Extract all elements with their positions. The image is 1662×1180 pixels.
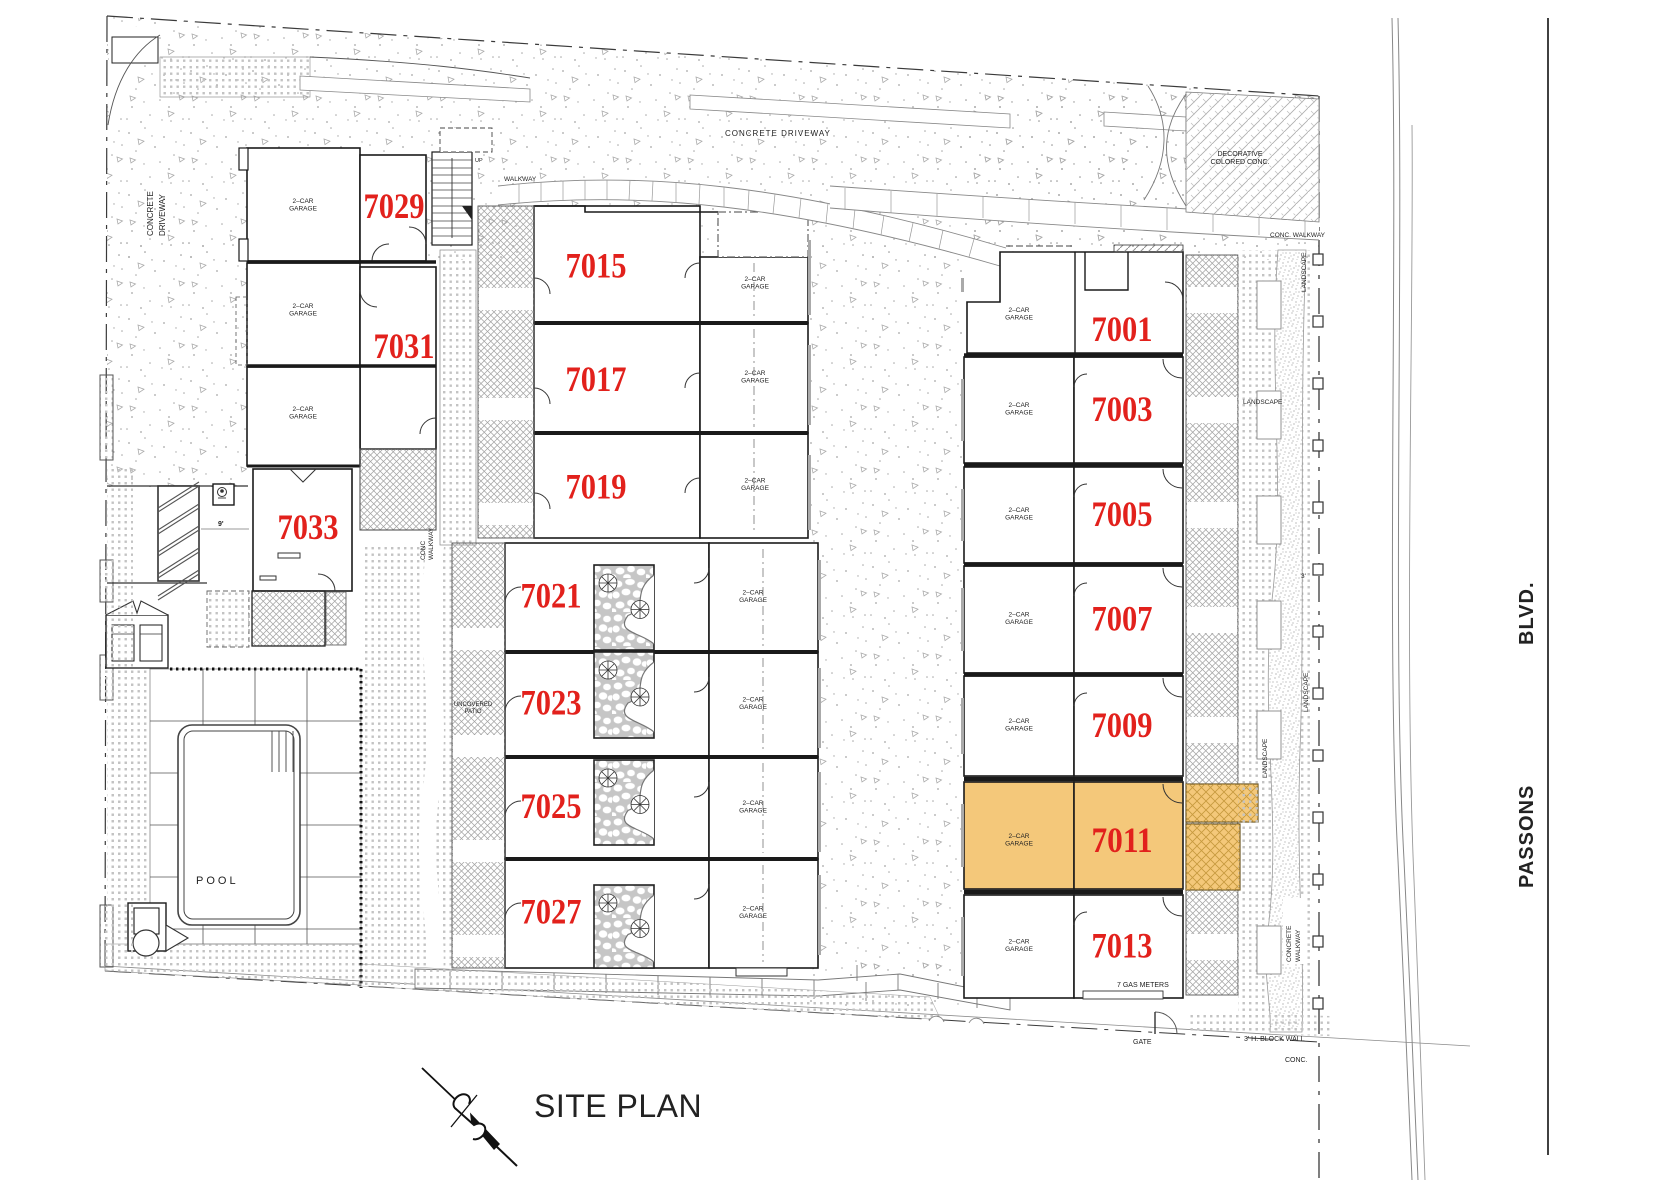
svg-text:WALKWAY: WALKWAY — [428, 527, 435, 560]
svg-text:2–CAR: 2–CAR — [1009, 939, 1030, 946]
svg-text:GARAGE: GARAGE — [1005, 315, 1033, 322]
svg-text:7029: 7029 — [364, 186, 425, 226]
svg-text:CONC. WALKWAY: CONC. WALKWAY — [1270, 232, 1326, 239]
svg-text:GARAGE: GARAGE — [741, 378, 769, 385]
svg-text:7013: 7013 — [1092, 926, 1153, 966]
svg-text:GARAGE: GARAGE — [1005, 946, 1033, 953]
svg-text:GARAGE: GARAGE — [1005, 410, 1033, 417]
svg-text:7009: 7009 — [1092, 705, 1153, 745]
svg-text:7019: 7019 — [566, 467, 627, 507]
svg-text:2–CAR: 2–CAR — [743, 590, 764, 597]
svg-text:2–CAR: 2–CAR — [745, 478, 766, 485]
svg-text:GARAGE: GARAGE — [289, 206, 317, 213]
svg-text:7005: 7005 — [1092, 494, 1153, 534]
svg-text:7033: 7033 — [278, 507, 339, 547]
svg-text:GARAGE: GARAGE — [1005, 841, 1033, 848]
svg-text:7007: 7007 — [1092, 599, 1153, 639]
svg-text:7025: 7025 — [521, 786, 582, 826]
svg-text:COLORED CONC.: COLORED CONC. — [1210, 159, 1269, 166]
svg-text:SITE PLAN: SITE PLAN — [534, 1088, 702, 1124]
svg-text:DRIVEWAY: DRIVEWAY — [158, 194, 167, 236]
svg-text:GARAGE: GARAGE — [1005, 726, 1033, 733]
svg-text:GARAGE: GARAGE — [1005, 515, 1033, 522]
svg-text:3' H. BLOCK WALL: 3' H. BLOCK WALL — [1244, 1036, 1305, 1043]
svg-text:CONCRETE DRIVEWAY: CONCRETE DRIVEWAY — [725, 129, 831, 138]
svg-text:2–CAR: 2–CAR — [743, 800, 764, 807]
svg-text:7017: 7017 — [566, 359, 627, 399]
svg-text:DECORATIVE: DECORATIVE — [1218, 151, 1263, 158]
svg-text:2–CAR: 2–CAR — [293, 406, 314, 413]
svg-text:7 GAS METERS: 7 GAS METERS — [1117, 982, 1169, 989]
svg-text:7021: 7021 — [521, 576, 582, 616]
svg-text:2–CAR: 2–CAR — [293, 198, 314, 205]
svg-text:7003: 7003 — [1092, 389, 1153, 429]
svg-text:7011: 7011 — [1092, 820, 1153, 860]
svg-text:9': 9' — [218, 521, 224, 528]
svg-text:GARAGE: GARAGE — [741, 485, 769, 492]
svg-text:2–CAR: 2–CAR — [1009, 507, 1030, 514]
svg-text:7031: 7031 — [374, 326, 435, 366]
svg-text:2–CAR: 2–CAR — [1009, 833, 1030, 840]
svg-text:UNCOVERED: UNCOVERED — [454, 702, 493, 708]
svg-text:7001: 7001 — [1092, 309, 1153, 349]
svg-text:LANDSCAPE: LANDSCAPE — [1303, 672, 1310, 712]
svg-text:CONCRETE: CONCRETE — [1286, 925, 1293, 962]
svg-text:7023: 7023 — [521, 683, 582, 723]
svg-text:PATIO: PATIO — [464, 709, 481, 715]
svg-text:GATE: GATE — [1133, 1039, 1152, 1046]
svg-text:LANDSCAPE: LANDSCAPE — [1262, 738, 1269, 778]
svg-text:UP: UP — [475, 158, 483, 164]
svg-text:CONC.: CONC. — [1285, 1057, 1308, 1064]
svg-text:2–CAR: 2–CAR — [1009, 307, 1030, 314]
svg-text:2–CAR: 2–CAR — [743, 697, 764, 704]
svg-text:2–CAR: 2–CAR — [293, 303, 314, 310]
svg-text:7015: 7015 — [566, 246, 627, 286]
svg-text:2–CAR: 2–CAR — [745, 276, 766, 283]
svg-text:POOL: POOL — [196, 875, 239, 887]
svg-text:WALKWAY: WALKWAY — [504, 176, 537, 183]
svg-text:LANDSCAPE: LANDSCAPE — [1243, 399, 1283, 406]
svg-text:GARAGE: GARAGE — [289, 311, 317, 318]
svg-text:CONCRETE: CONCRETE — [146, 191, 155, 236]
svg-text:2–CAR: 2–CAR — [1009, 612, 1030, 619]
svg-text:BLVD.: BLVD. — [1516, 581, 1538, 645]
svg-text:2–CAR: 2–CAR — [1009, 718, 1030, 725]
svg-text:PASSONS: PASSONS — [1516, 785, 1538, 888]
svg-text:GARAGE: GARAGE — [741, 284, 769, 291]
svg-text:3': 3' — [1301, 573, 1306, 580]
svg-text:2–CAR: 2–CAR — [1009, 402, 1030, 409]
svg-text:WALKWAY: WALKWAY — [1295, 929, 1302, 962]
svg-text:CONC: CONC — [420, 541, 427, 560]
svg-text:GARAGE: GARAGE — [1005, 619, 1033, 626]
svg-text:7027: 7027 — [521, 892, 582, 932]
svg-text:2–CAR: 2–CAR — [743, 906, 764, 913]
svg-text:LANDSCAPE: LANDSCAPE — [1301, 252, 1308, 292]
svg-text:2–CAR: 2–CAR — [745, 370, 766, 377]
svg-text:GARAGE: GARAGE — [289, 414, 317, 421]
